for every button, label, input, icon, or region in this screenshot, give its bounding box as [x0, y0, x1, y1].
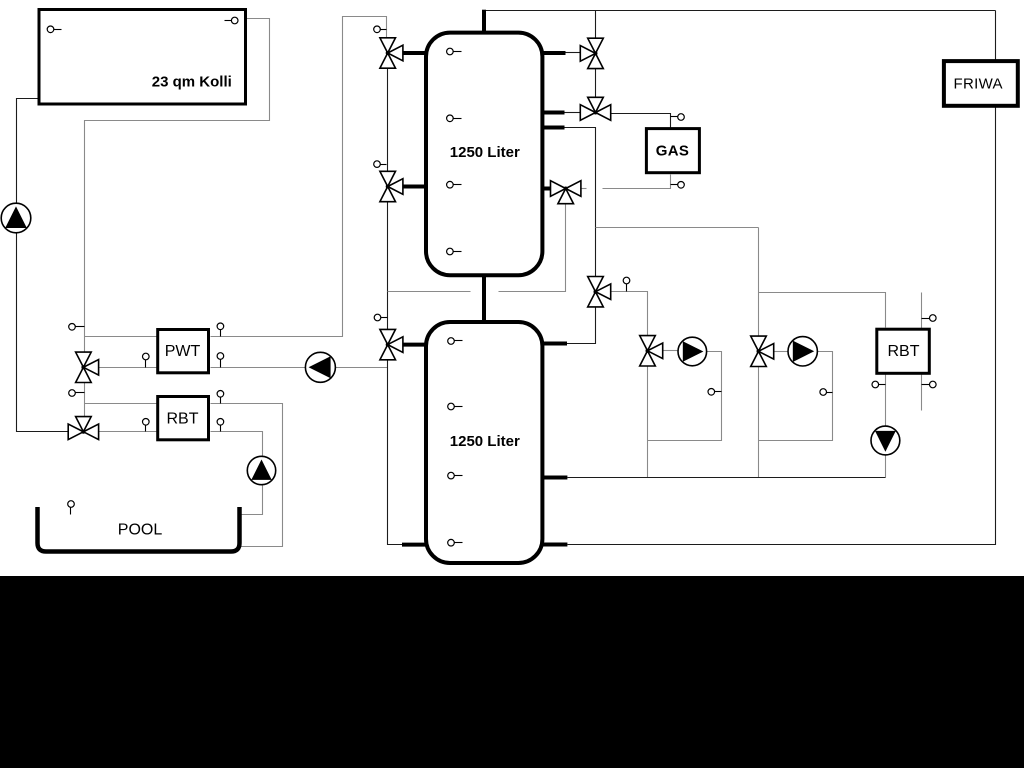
svg-text:GAS: GAS: [656, 142, 689, 159]
svg-text:RBT: RBT: [167, 410, 199, 427]
svg-text:1250 Liter: 1250 Liter: [450, 144, 520, 161]
svg-text:RBT: RBT: [888, 343, 920, 360]
svg-text:POOL: POOL: [118, 522, 163, 539]
svg-text:23 qm Kolli: 23 qm Kolli: [152, 74, 232, 91]
svg-text:1250 Liter: 1250 Liter: [450, 433, 520, 450]
svg-text:FRIWA: FRIWA: [954, 76, 1003, 93]
svg-text:PWT: PWT: [165, 343, 201, 360]
